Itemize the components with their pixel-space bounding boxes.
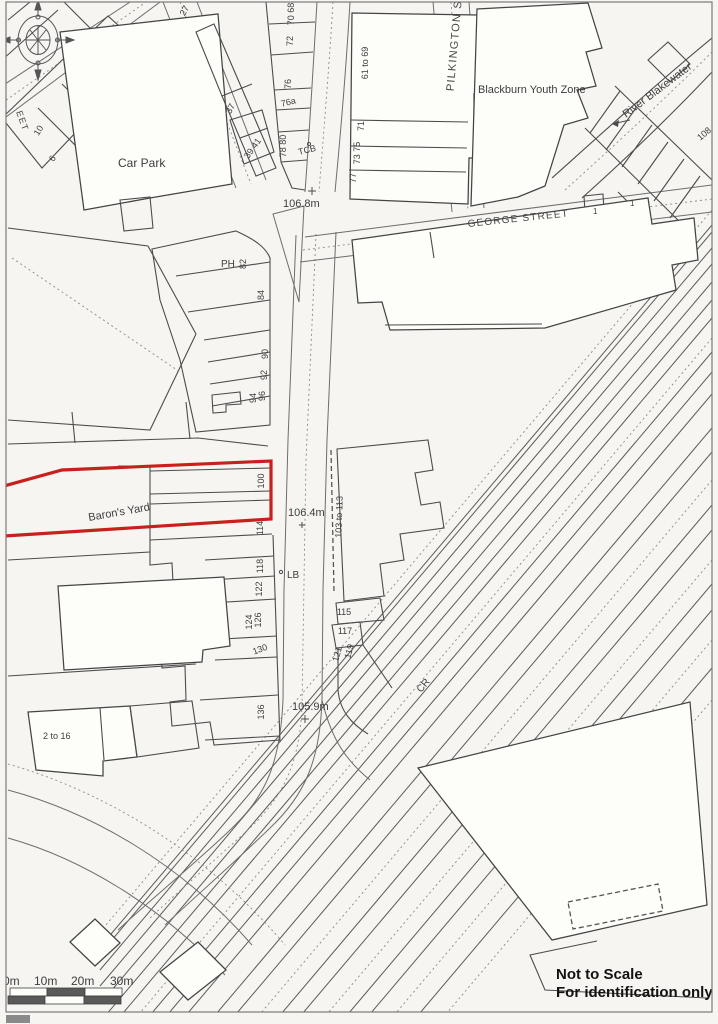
site-plan-map: Car Park Blackburn Youth Zone River Blak… xyxy=(0,0,718,1024)
spot-height-106-4: 106.4m xyxy=(288,507,325,519)
house-number-136: 136 xyxy=(256,704,266,719)
house-number-61-69: 61 to 69 xyxy=(360,47,370,80)
note-identification-only: For identification only xyxy=(556,984,713,1001)
house-number-73-75: 73 75 xyxy=(352,142,362,165)
house-number-100: 100 xyxy=(256,473,266,488)
margin-mark xyxy=(6,1015,30,1023)
house-number-126: 126 xyxy=(253,612,263,627)
house-number-103-113: 103 to 113 xyxy=(333,496,344,538)
house-number-117: 117 xyxy=(338,626,352,636)
house-number-122: 122 xyxy=(254,581,264,596)
house-number-70-68: 70 68 xyxy=(286,3,296,26)
scale-bar xyxy=(8,988,122,1004)
label-youth-zone: Blackburn Youth Zone xyxy=(478,84,586,96)
house-number-2-16: 2 to 16 xyxy=(43,731,71,741)
house-number-76: 76 xyxy=(283,79,293,89)
house-number-1a: 1 xyxy=(593,207,598,216)
label-car-park: Car Park xyxy=(118,156,166,170)
note-not-to-scale: Not to Scale xyxy=(556,966,643,983)
map-canvas: Car Park Blackburn Youth Zone River Blak… xyxy=(0,0,718,1024)
label-ph: PH xyxy=(221,259,235,270)
house-number-96: 96 xyxy=(257,391,267,401)
scale-tick-30m: 30m xyxy=(110,974,133,988)
house-number-114: 114 xyxy=(255,521,265,535)
spot-height-105-9: 105.9m xyxy=(292,701,329,713)
spot-height-106-8: 106.8m xyxy=(283,198,320,210)
scale-tick-10m: 10m xyxy=(34,974,57,988)
house-number-71: 71 xyxy=(356,121,366,131)
house-number-77: 77 xyxy=(348,173,358,183)
house-number-82: 82 xyxy=(238,259,248,269)
house-number-118: 118 xyxy=(255,559,265,573)
house-number-78-80: 78 80 xyxy=(278,135,288,158)
house-number-115: 115 xyxy=(337,607,351,617)
house-number-72: 72 xyxy=(285,36,295,46)
house-number-1b: 1 xyxy=(630,199,635,208)
car-park-block xyxy=(60,14,232,210)
scale-tick-20m: 20m xyxy=(71,974,94,988)
house-number-90: 90 xyxy=(260,349,270,359)
label-lb: LB xyxy=(287,570,300,581)
house-number-84: 84 xyxy=(256,290,266,300)
house-number-92: 92 xyxy=(259,370,269,380)
